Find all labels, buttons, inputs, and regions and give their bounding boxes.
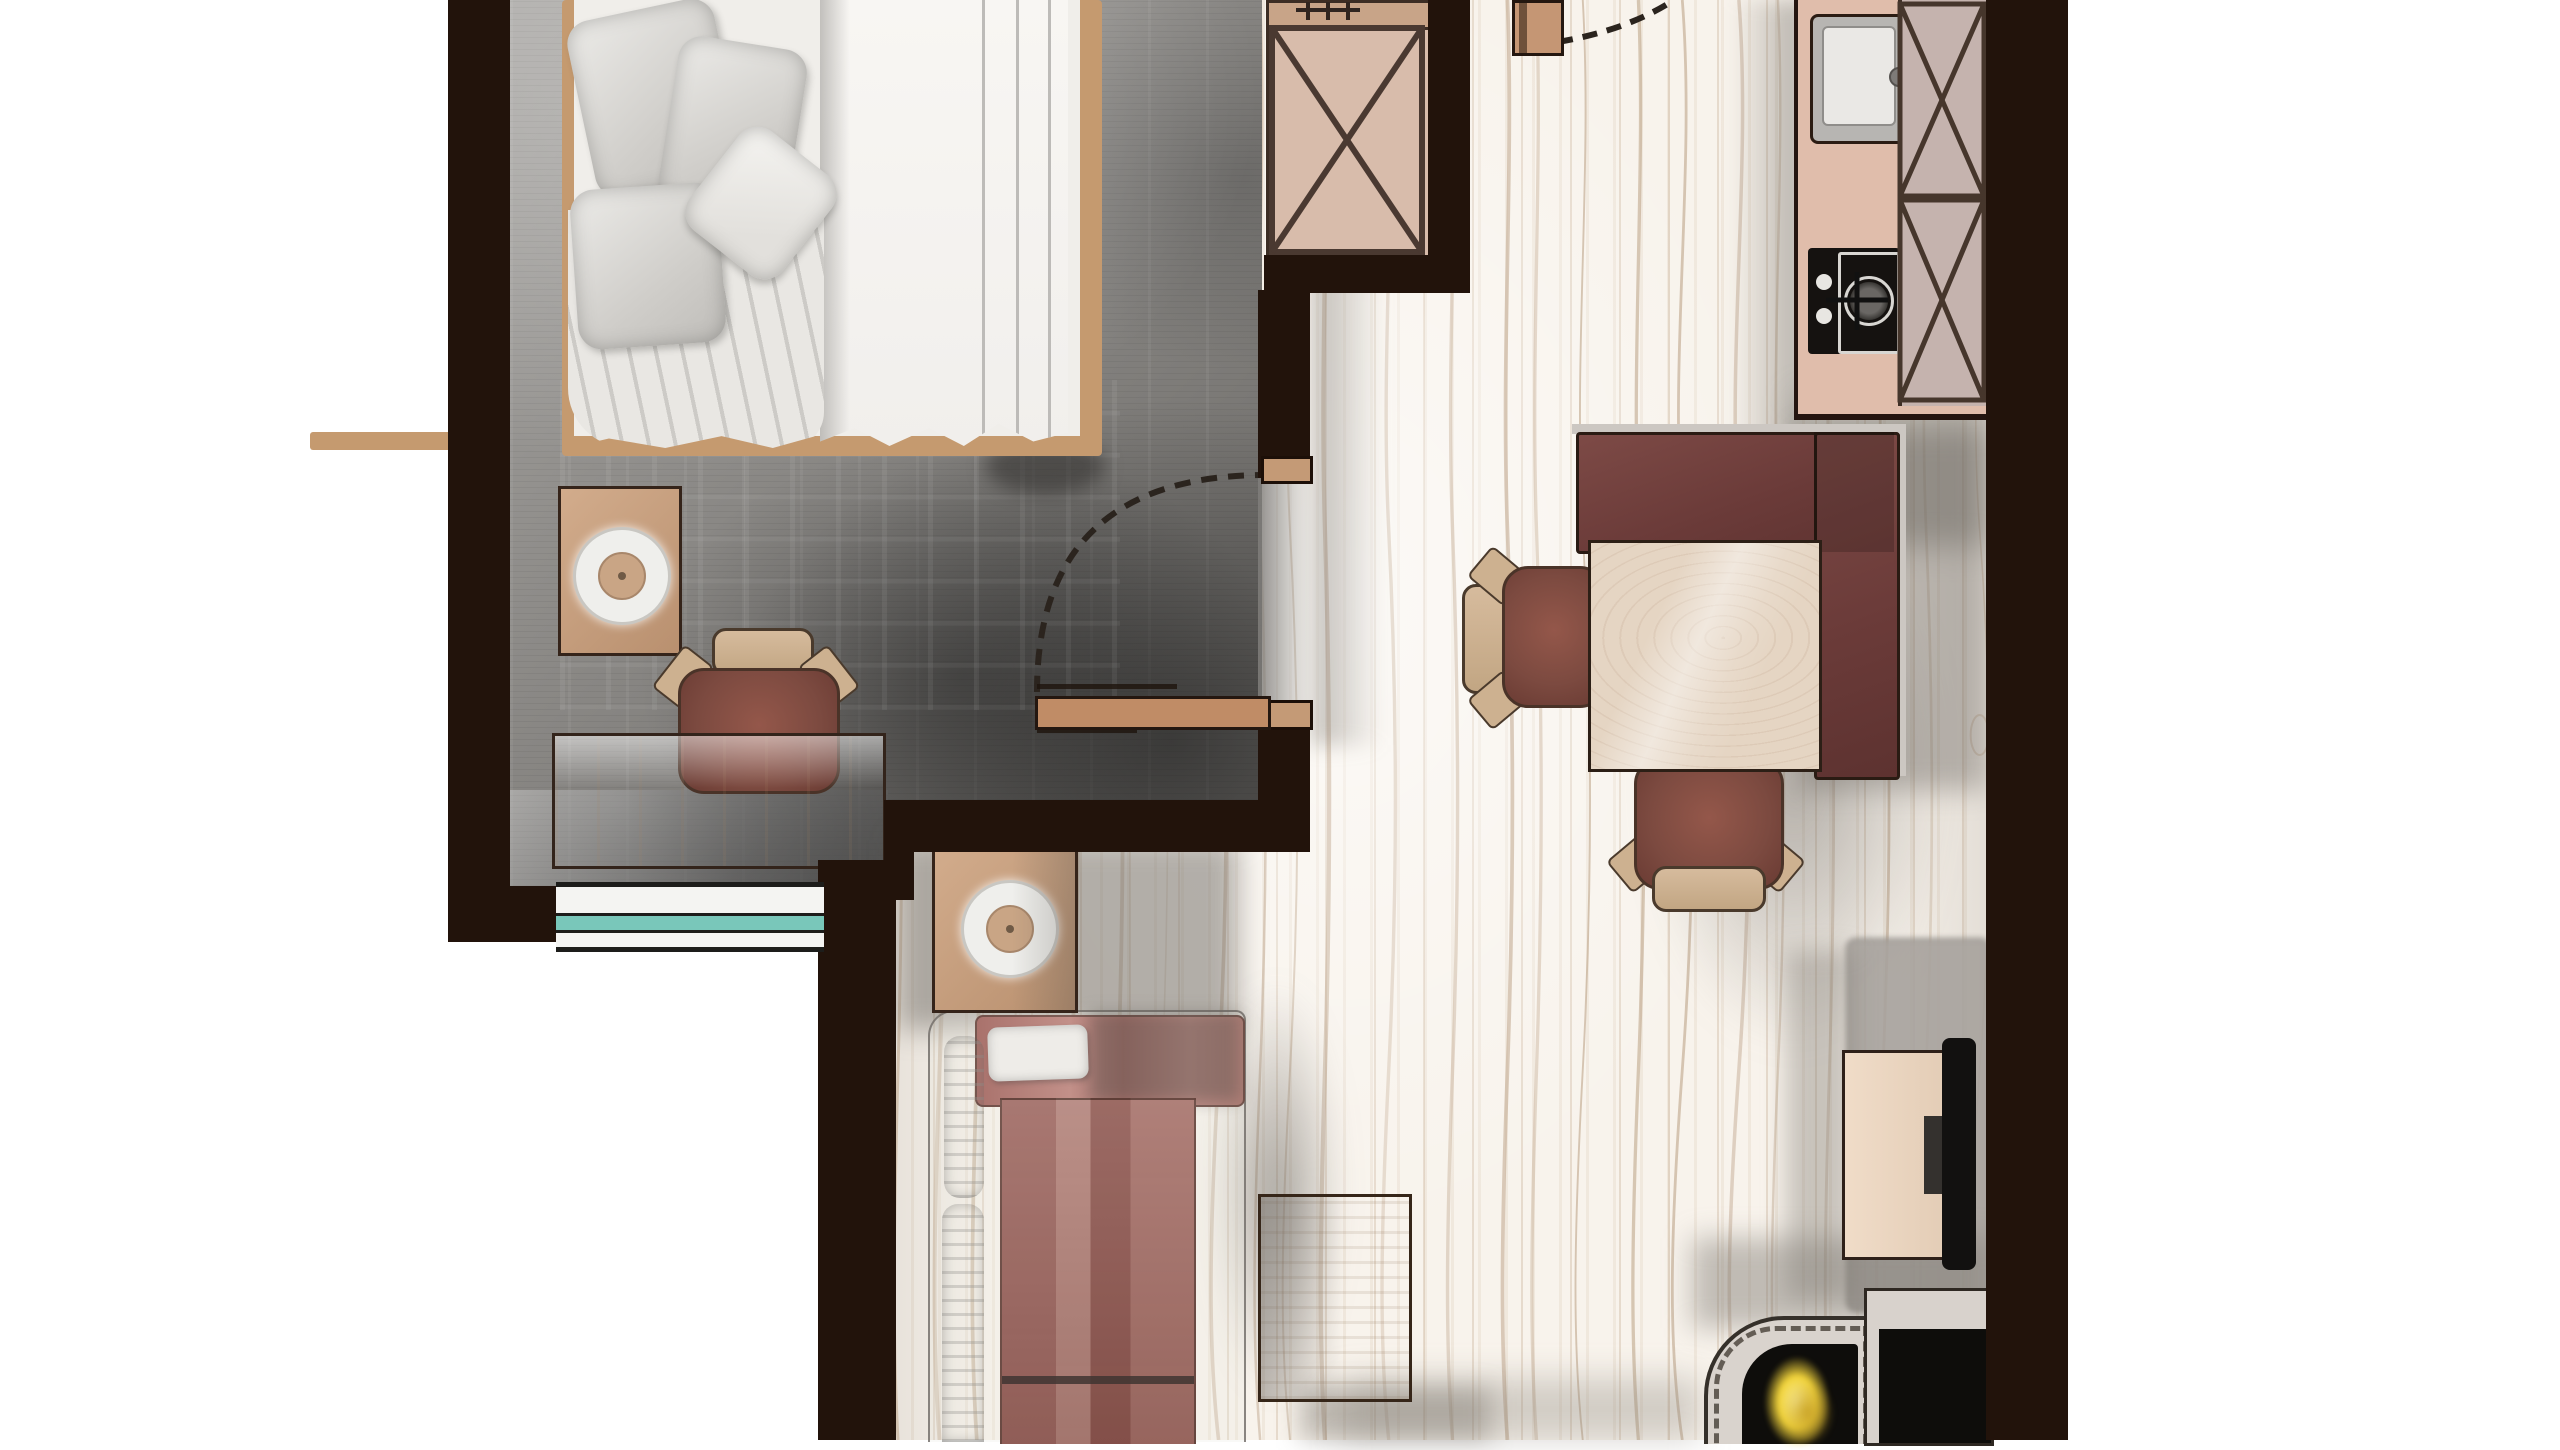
window-glass xyxy=(556,913,824,933)
bed-duvet xyxy=(820,0,1068,446)
sofa-seat-divider xyxy=(1002,1376,1194,1384)
firebox xyxy=(1742,1344,1858,1444)
window xyxy=(556,882,824,952)
sofa-back-cushion xyxy=(942,1204,984,1442)
dining-table xyxy=(1588,540,1822,772)
double-bed xyxy=(562,0,1102,456)
sofa-shadow xyxy=(1090,1012,1240,1102)
wall-bedroom-bottom-right xyxy=(884,800,1264,852)
sofa-back-cushion xyxy=(944,1036,984,1198)
lamp-finial xyxy=(1006,925,1014,933)
sofa xyxy=(928,1010,1246,1442)
burner-small xyxy=(1816,274,1832,290)
coffee-table xyxy=(1258,1194,1412,1402)
entry-door-jamb xyxy=(1512,0,1564,56)
wall-above-door xyxy=(1258,290,1310,478)
door-frame-line xyxy=(1037,684,1177,689)
lamp-shade xyxy=(986,905,1034,953)
table-lamp-icon xyxy=(961,880,1059,978)
dining-chair-back xyxy=(1652,866,1766,912)
lamp-finial xyxy=(618,572,626,580)
wardrobe xyxy=(1266,0,1434,264)
doorway-floor-transition xyxy=(1258,477,1312,703)
nightstand xyxy=(558,486,682,656)
door-leaf-open xyxy=(1035,696,1271,730)
desk xyxy=(552,733,886,869)
lamp-shade xyxy=(598,552,646,600)
fireplace xyxy=(1704,1316,1878,1444)
wall-mounted-tv xyxy=(1942,1038,1976,1270)
wall-cap xyxy=(1261,456,1313,484)
wall-wardrobe-right xyxy=(1428,0,1470,262)
bench-corner-shadow xyxy=(1814,432,1894,552)
floor-plan xyxy=(0,0,2560,1440)
sofa-pillow xyxy=(987,1024,1089,1081)
sink-basin xyxy=(1822,26,1896,126)
burner-small xyxy=(1816,308,1832,324)
sink-icon xyxy=(1810,14,1912,144)
table-lamp-icon xyxy=(573,527,671,625)
wall-bedroom-bottom-left xyxy=(448,886,570,942)
cooktop-icon xyxy=(1808,248,1900,354)
hearth-glass xyxy=(1879,1329,1991,1443)
flame-icon xyxy=(1782,1380,1834,1446)
hearth-panel xyxy=(1864,1288,1994,1446)
wall-right xyxy=(1986,0,2068,1440)
side-table xyxy=(932,845,1078,1013)
wall-living-left xyxy=(818,860,896,1440)
sofa-seats xyxy=(1000,1098,1196,1444)
burner-large xyxy=(1844,276,1894,326)
wall-bedroom-left xyxy=(448,0,510,942)
wardrobe-rail xyxy=(1269,3,1431,30)
tall-cabinets xyxy=(1898,0,1996,406)
kitchenette-unit xyxy=(1794,0,1992,420)
